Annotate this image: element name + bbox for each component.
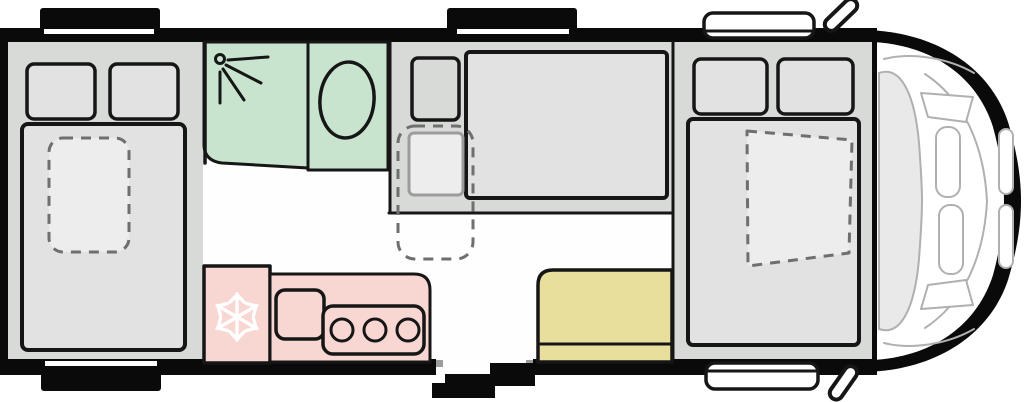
front-bed-extension-dashed	[747, 131, 852, 266]
front-bedroom	[672, 42, 872, 359]
door-sill	[490, 363, 535, 375]
kitchen-sink	[276, 290, 324, 339]
bathroom	[204, 42, 388, 170]
window-mid-top-seam	[457, 29, 569, 34]
headlight-left	[936, 127, 960, 197]
bumper-trim-lower	[999, 205, 1013, 268]
floorplan-canvas	[0, 0, 1024, 402]
entry-step-lower	[432, 383, 495, 398]
swivel-seat-cushion	[409, 133, 463, 195]
front-bed-pillow-right	[778, 59, 853, 114]
entry-door	[432, 355, 535, 398]
bench-seat	[538, 270, 672, 362]
window-rear-bottom	[41, 369, 161, 391]
cab-front	[868, 30, 1021, 372]
burner-2	[364, 319, 386, 341]
burner-3	[397, 319, 419, 341]
grille-lower	[921, 280, 973, 309]
roof-hatch-bottom	[706, 363, 818, 389]
window-rear-bottom-seam	[45, 361, 157, 366]
window-rear-top-seam	[44, 29, 154, 34]
rear-bed-pillow-right	[110, 64, 178, 119]
lounge-bench	[538, 270, 672, 362]
rear-bed-topper-dashed	[49, 138, 129, 252]
bumper-trim-upper	[999, 129, 1013, 194]
kitchen	[204, 266, 430, 363]
dinette-seat-cushion	[412, 58, 459, 120]
rear-bedroom	[8, 42, 203, 359]
front-bed-pillow-left	[694, 59, 767, 114]
motorhome-floorplan	[0, 0, 1024, 402]
headlight-right	[939, 205, 963, 274]
door-hinge-left	[436, 360, 443, 367]
rear-bed-pillow-left	[27, 64, 95, 119]
mid-bed-mattress	[466, 52, 667, 198]
roof-hatch-top	[704, 13, 814, 38]
burner-1	[331, 319, 353, 341]
grille-upper	[921, 93, 973, 122]
